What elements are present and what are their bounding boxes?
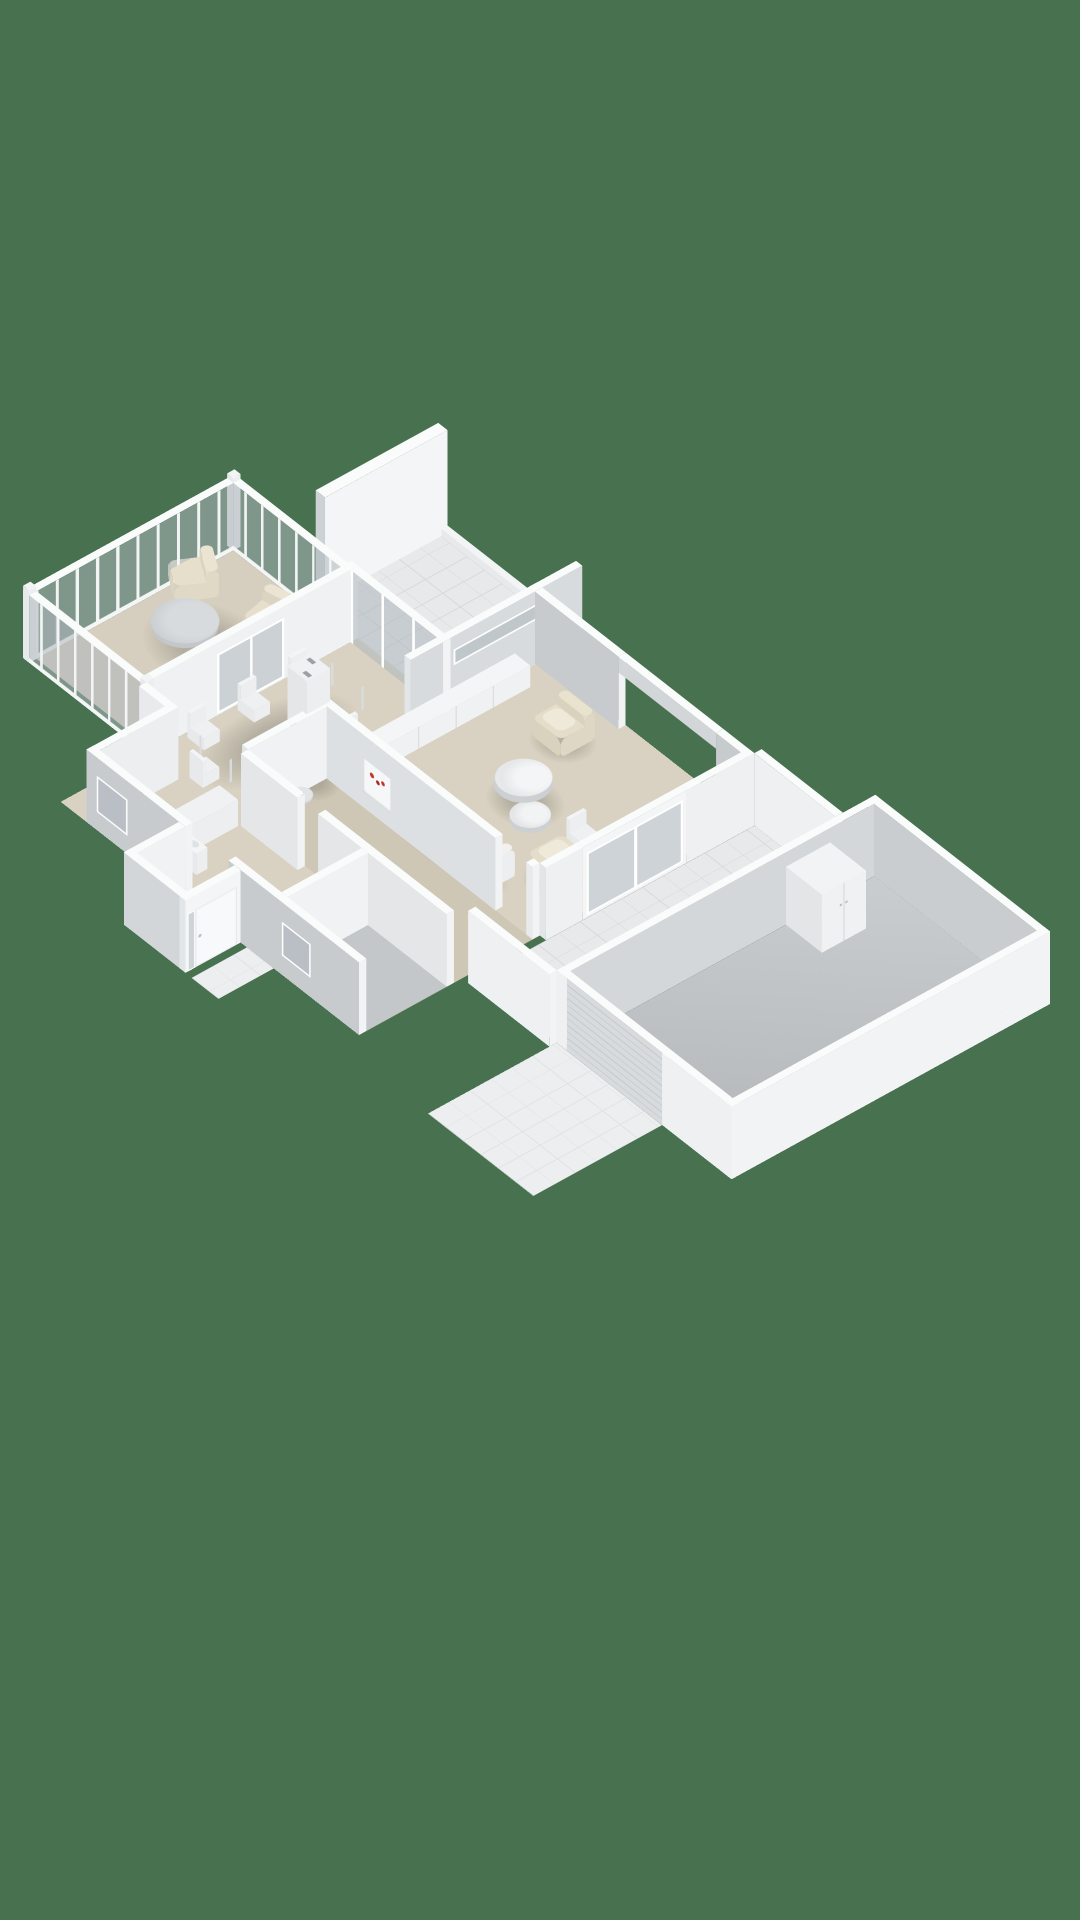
french-door-mullion (634, 825, 637, 889)
south-wall-bath (228, 929, 366, 1035)
wardrobe-door-seam (843, 882, 844, 941)
kitchen-window (97, 776, 128, 836)
table-leg (230, 759, 232, 783)
table-leg (361, 686, 363, 710)
stove-top-vent (306, 658, 316, 665)
garage-south-wall-b (662, 1121, 739, 1179)
terrace-south-wall (468, 979, 557, 1047)
stove-top-vent (302, 671, 312, 678)
wardrobe-knob (840, 903, 842, 907)
wardrobe-knob (845, 900, 847, 904)
front-door-sidelight (187, 910, 195, 972)
table-leg (331, 662, 333, 686)
floorplan-screenshot (0, 0, 1080, 1920)
bathroom-window (282, 922, 311, 978)
wall-niche (363, 757, 391, 813)
